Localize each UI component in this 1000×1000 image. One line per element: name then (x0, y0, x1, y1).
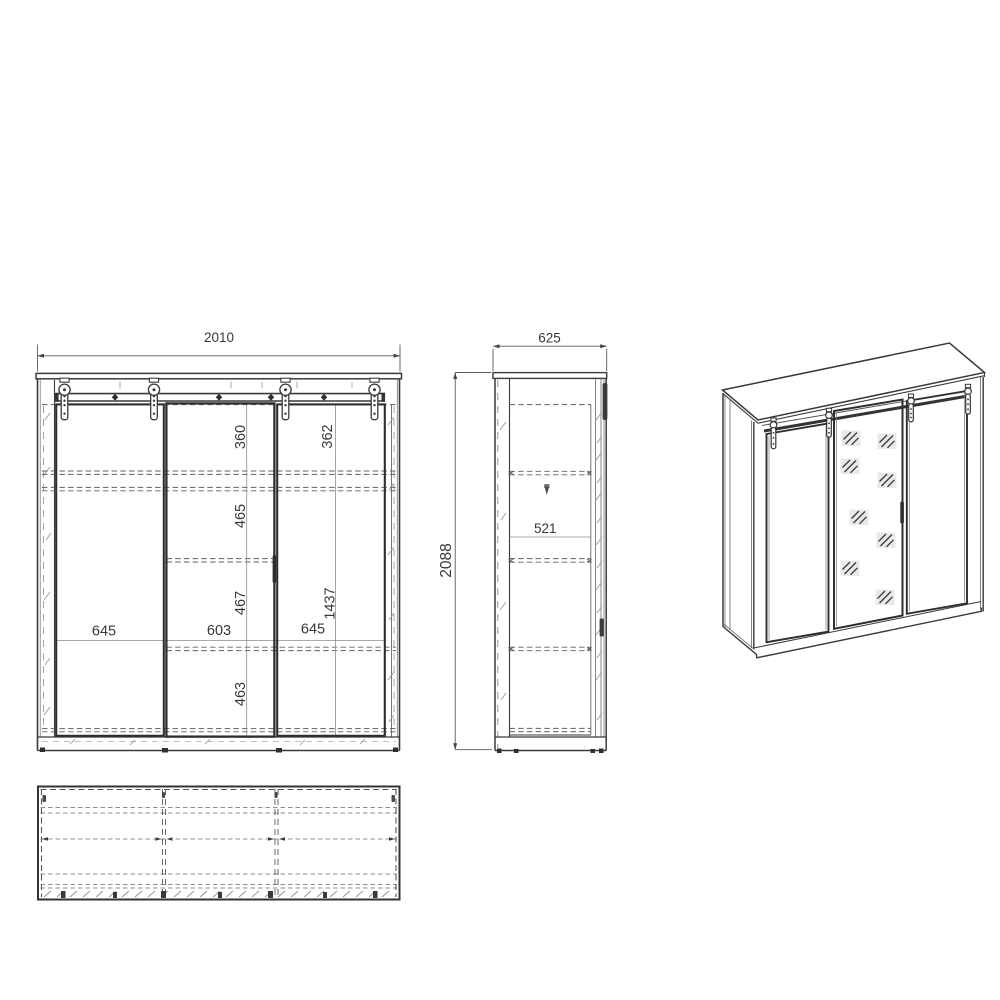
svg-text:2010: 2010 (204, 330, 234, 345)
svg-text:645: 645 (301, 622, 325, 638)
svg-text:362: 362 (320, 424, 336, 448)
svg-text:463: 463 (233, 682, 249, 706)
svg-text:360: 360 (233, 425, 249, 449)
svg-text:521: 521 (534, 521, 557, 536)
svg-text:625: 625 (538, 331, 561, 346)
svg-text:2088: 2088 (438, 543, 455, 577)
svg-text:1437: 1437 (323, 587, 339, 619)
svg-text:465: 465 (233, 504, 249, 528)
svg-text:467: 467 (233, 591, 249, 615)
svg-text:645: 645 (92, 624, 116, 640)
svg-text:603: 603 (207, 623, 231, 639)
